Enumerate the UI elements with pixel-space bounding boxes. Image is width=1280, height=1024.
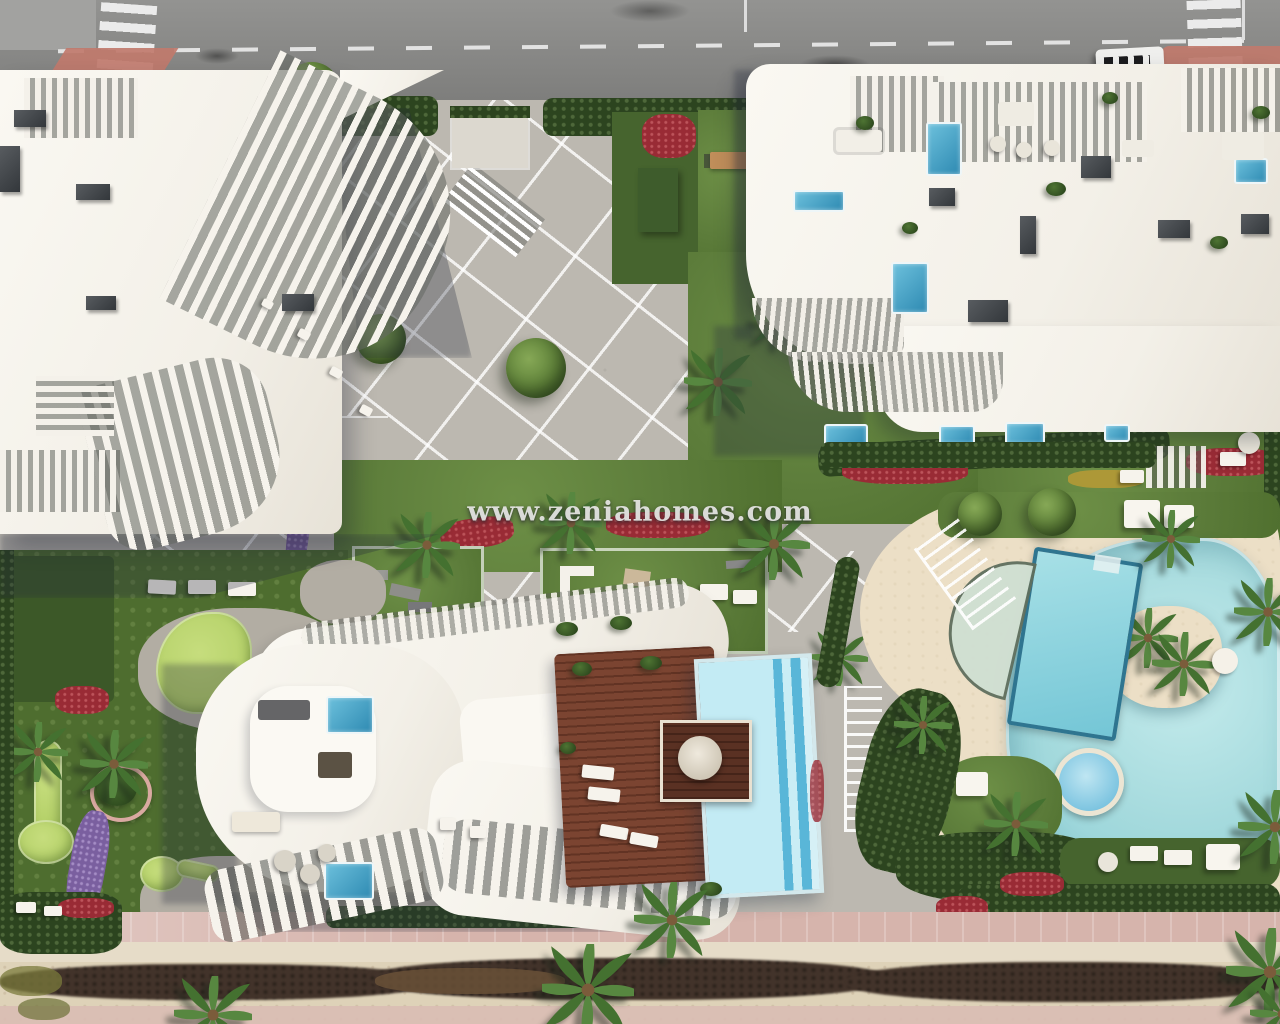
canal-shallow: [375, 968, 565, 994]
outdoor-dining-table: [232, 812, 280, 832]
shrub: [610, 616, 632, 630]
shrub: [1046, 182, 1066, 196]
shrub: [572, 662, 592, 676]
round-daybed: [318, 844, 336, 862]
roof-vent: [1081, 156, 1111, 178]
lane-marking: [744, 0, 747, 32]
palm-tree: [80, 730, 148, 798]
sun-lounger: [470, 826, 486, 838]
tree: [1028, 488, 1076, 536]
flower-bed-red: [58, 898, 114, 918]
flower-bed-red: [55, 686, 109, 714]
plunge-pool: [1234, 158, 1268, 184]
roof-vent: [86, 296, 116, 310]
dune-moss: [0, 966, 62, 996]
round-daybed: [1238, 432, 1260, 454]
palm-tree: [634, 882, 710, 958]
shrub: [640, 656, 662, 670]
terrace-furniture: [318, 752, 352, 778]
roof-vent: [929, 188, 955, 206]
flower-bed-red: [810, 760, 824, 822]
round-table: [678, 736, 722, 780]
chairs: [704, 154, 710, 168]
roof-vent: [1241, 214, 1269, 234]
roof-vent: [1158, 220, 1190, 238]
sun-lounger: [16, 902, 36, 913]
round-daybed: [990, 136, 1006, 152]
sun-lounger: [1120, 470, 1144, 483]
round-daybed: [1098, 852, 1118, 872]
cabana: [1206, 844, 1240, 870]
palm-tree: [8, 722, 68, 782]
roof-vent: [0, 146, 20, 192]
terrace-furniture: [258, 700, 310, 720]
palm-tree: [394, 512, 460, 578]
terrace-pool: [326, 696, 374, 734]
sun-lounger: [1220, 452, 1246, 466]
shrub: [1102, 92, 1118, 104]
aerial-site-render: www.zeniahomes.com: [0, 0, 1280, 1024]
canal: [846, 962, 1280, 1002]
roof-vent: [282, 294, 314, 311]
palm-tree: [894, 696, 952, 754]
rooftop-pergola: [1181, 68, 1280, 132]
shrub: [856, 116, 874, 130]
plunge-pool: [926, 122, 962, 176]
palm-tree: [1238, 790, 1280, 864]
palm-tree: [1142, 510, 1200, 568]
shrub: [556, 622, 578, 636]
road-stain: [195, 48, 239, 64]
sun-lounger: [44, 906, 62, 916]
sun-lounger: [1164, 850, 1192, 865]
roof-vent: [968, 300, 1008, 322]
rooftop-pergola: [0, 450, 120, 512]
hedge: [450, 106, 530, 118]
rooftop-dining-set: [836, 130, 882, 152]
round-daybed: [1016, 142, 1032, 158]
flower-bed-red: [642, 114, 696, 158]
shrub: [902, 222, 918, 234]
terrace-pool: [324, 862, 374, 900]
tree: [506, 338, 566, 398]
plunge-pool: [793, 190, 845, 212]
dune-moss: [18, 998, 70, 1020]
jacuzzi: [1054, 748, 1124, 816]
shrub: [1252, 106, 1270, 119]
palm-tree: [542, 944, 634, 1024]
rooftop-lounge: [1222, 132, 1264, 160]
palm-tree: [1152, 632, 1216, 696]
sun-lounger: [1130, 846, 1158, 861]
watermark: www.zeniahomes.com: [467, 497, 812, 528]
rooftop-pergola: [24, 78, 138, 138]
roof-vent: [1020, 216, 1036, 254]
parasol: [1212, 648, 1238, 674]
lane-marking: [1242, 0, 1245, 40]
flower-bed-red: [1000, 872, 1064, 896]
rooftop-lounge: [1122, 140, 1154, 157]
road-stain: [610, 0, 690, 22]
sun-lounger: [733, 590, 757, 604]
plunge-pool: [891, 262, 929, 314]
round-daybed: [274, 850, 296, 872]
roof-vent: [14, 110, 46, 127]
round-daybed: [300, 864, 320, 884]
sidewalk-corner: [0, 0, 96, 50]
mini-golf-green: [18, 820, 74, 864]
sun-lounger: [440, 818, 456, 830]
rooftop-sofa: [998, 102, 1034, 126]
round-daybed: [1044, 140, 1060, 156]
rooftop-pergola: [36, 376, 114, 436]
palm-tree: [1234, 578, 1280, 646]
palm-tree: [174, 976, 252, 1024]
court-pad: [452, 112, 528, 168]
hedge: [0, 550, 14, 930]
shrub: [1210, 236, 1228, 249]
palm-tree: [984, 792, 1048, 856]
hedge: [820, 442, 1156, 468]
garden-shed: [638, 168, 678, 232]
palm-tree: [1250, 982, 1280, 1024]
roof-vent: [76, 184, 110, 200]
balcony-fins: [788, 352, 1003, 412]
ground-floor-pool: [1104, 424, 1130, 442]
shrub: [560, 742, 576, 754]
